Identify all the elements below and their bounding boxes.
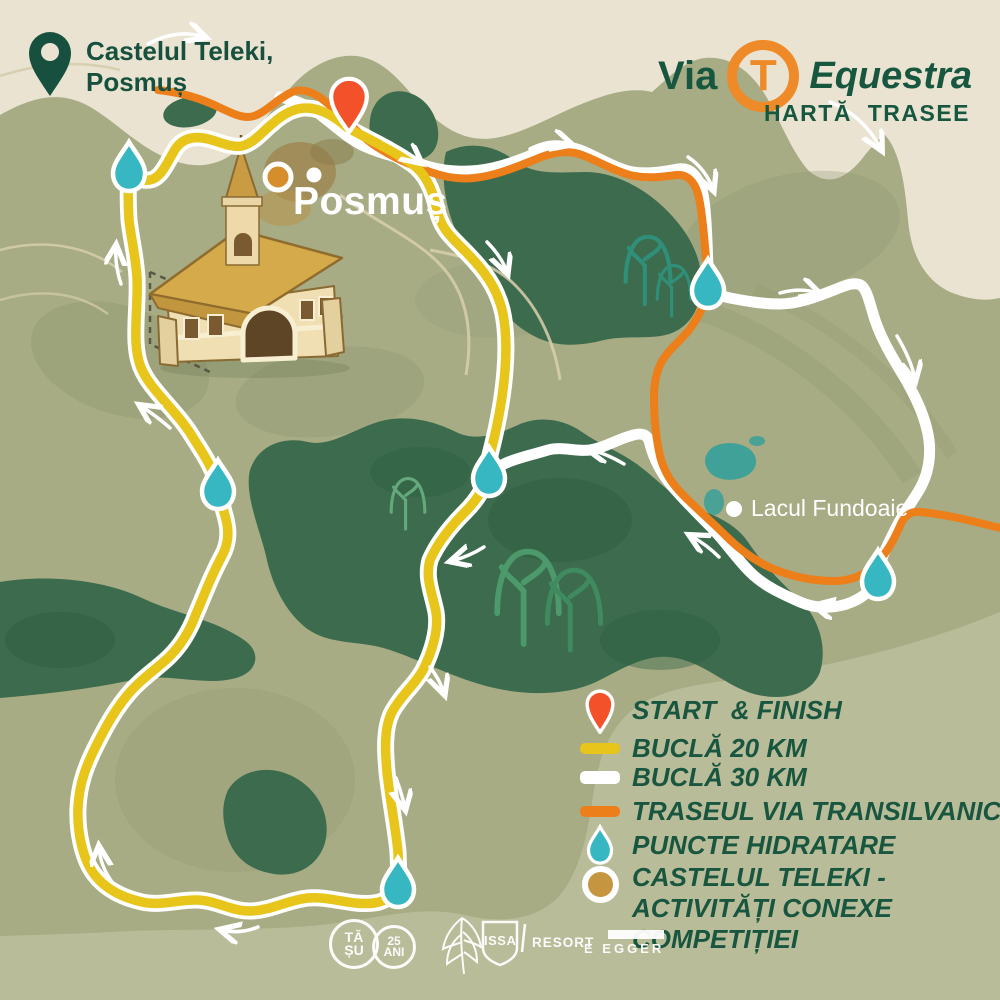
tasu-text: ȘU xyxy=(344,944,363,957)
trail-20km-swatch xyxy=(580,743,620,754)
tasu-25ani-circle: 25 ANI xyxy=(372,925,416,969)
brand-via-text: Via xyxy=(658,54,717,99)
tasuleasa-logo: TĂ ȘU 25 ANI xyxy=(329,919,416,969)
lake-dot-icon xyxy=(726,501,742,517)
location-pin-icon xyxy=(26,28,74,100)
castle-marker-icon xyxy=(582,866,619,903)
brand-t-letter: T xyxy=(750,51,777,101)
leaf-icon xyxy=(443,918,481,974)
castle-marker xyxy=(265,164,291,190)
legend-label: BUCLĂ 30 KM xyxy=(632,762,807,793)
trail-30km-swatch xyxy=(580,771,620,784)
egger-bar-icon xyxy=(608,930,664,939)
location-line2: Posmuș xyxy=(86,67,273,98)
location-line1: Castelul Teleki, xyxy=(86,36,273,67)
egger-text: E EGGER xyxy=(584,941,694,956)
via-transilvanica-swatch xyxy=(580,806,620,817)
legend-start-finish: START & FINISH xyxy=(580,686,842,734)
legend-label: BUCLĂ 20 KM xyxy=(632,733,807,764)
legend-label: PUNCTE HIDRATARE xyxy=(632,830,895,861)
start-pin-icon xyxy=(580,686,620,734)
issa-shield-text: ISSA xyxy=(484,933,516,948)
legend-loop-30km: BUCLĂ 30 KM xyxy=(580,762,807,793)
egger-logo: E EGGER xyxy=(584,930,694,956)
lake-label-text: Lacul Fundoaie xyxy=(751,495,908,522)
divider-line xyxy=(522,924,525,952)
brand-subtitle: HARTĂ TRASEE xyxy=(764,100,970,127)
brand-name-text: Equestra xyxy=(809,55,972,98)
village-label: Posmuș xyxy=(293,180,448,224)
tasu-text: ANI xyxy=(384,947,405,958)
legend-label: START & FINISH xyxy=(632,695,842,726)
trail-map-poster: Posmuș Lacul Fundoaie Castelul Teleki, P… xyxy=(0,0,1000,1000)
header-location: Castelul Teleki, Posmuș xyxy=(26,28,273,100)
lake-label: Lacul Fundoaie xyxy=(726,495,908,522)
legend-loop-20km: BUCLĂ 20 KM xyxy=(580,733,807,764)
